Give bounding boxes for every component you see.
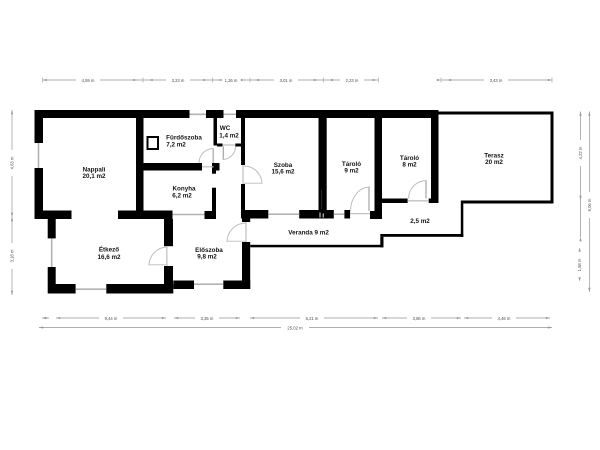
svg-text:9,44 m: 9,44 m bbox=[105, 316, 118, 321]
svg-text:3,43 m: 3,43 m bbox=[490, 78, 503, 83]
svg-text:3,01 m: 3,01 m bbox=[280, 78, 293, 83]
svg-text:9,8 m2: 9,8 m2 bbox=[197, 254, 217, 261]
svg-text:1,4 m2: 1,4 m2 bbox=[219, 133, 239, 140]
svg-text:Étkező: Étkező bbox=[99, 245, 119, 254]
svg-text:15,6 m2: 15,6 m2 bbox=[271, 169, 295, 176]
svg-text:20 m2: 20 m2 bbox=[485, 159, 503, 166]
svg-text:16,6 m2: 16,6 m2 bbox=[97, 254, 121, 261]
svg-text:6,06 m: 6,06 m bbox=[587, 198, 592, 211]
svg-text:2,5 m2: 2,5 m2 bbox=[410, 218, 430, 225]
svg-text:2,23 m: 2,23 m bbox=[346, 78, 359, 83]
svg-text:8 m2: 8 m2 bbox=[402, 162, 417, 169]
svg-text:WC: WC bbox=[220, 125, 231, 132]
svg-text:3,23 m: 3,23 m bbox=[172, 78, 185, 83]
svg-text:4,46 m: 4,46 m bbox=[498, 316, 511, 321]
svg-text:3,86 m: 3,86 m bbox=[413, 316, 426, 321]
svg-text:6,2 m2: 6,2 m2 bbox=[172, 193, 192, 200]
svg-text:4,59 m: 4,59 m bbox=[82, 78, 95, 83]
svg-text:25,02 m: 25,02 m bbox=[287, 326, 303, 331]
svg-text:5,21 m: 5,21 m bbox=[306, 316, 319, 321]
svg-text:3,18 m: 3,18 m bbox=[10, 249, 15, 262]
svg-text:20,1 m2: 20,1 m2 bbox=[82, 173, 106, 180]
svg-text:3,35 m: 3,35 m bbox=[201, 316, 214, 321]
svg-text:4,22 m: 4,22 m bbox=[578, 146, 583, 159]
svg-text:7,2 m2: 7,2 m2 bbox=[166, 142, 186, 149]
svg-text:4,63 m: 4,63 m bbox=[10, 156, 15, 169]
svg-text:Konyha: Konyha bbox=[172, 186, 196, 193]
svg-text:1,26 m: 1,26 m bbox=[225, 78, 238, 83]
svg-text:Veranda 9 m2: Veranda 9 m2 bbox=[288, 230, 329, 237]
svg-text:1,58 m: 1,58 m bbox=[577, 258, 582, 271]
svg-text:9 m2: 9 m2 bbox=[344, 168, 359, 175]
